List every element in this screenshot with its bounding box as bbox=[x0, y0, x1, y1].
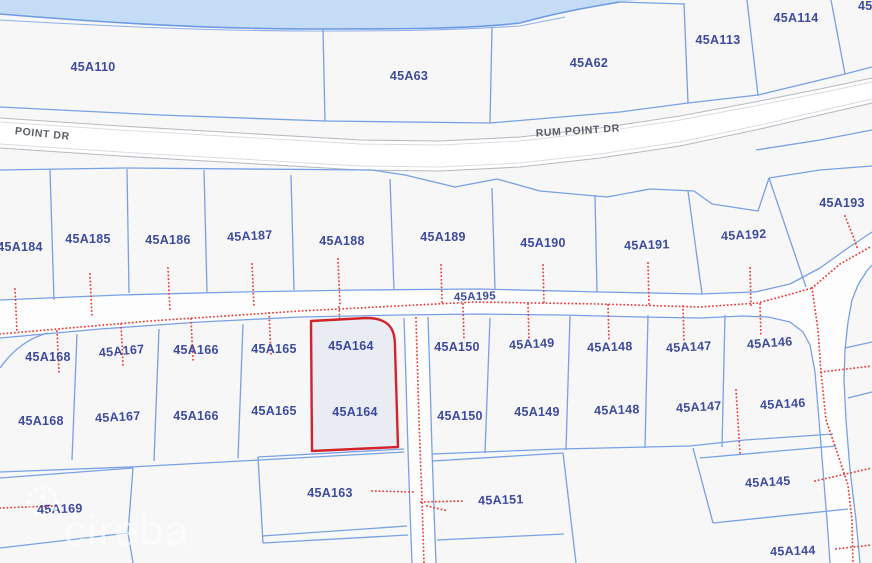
selected-parcel-45A164[interactable] bbox=[311, 318, 398, 451]
parcel-label-45A147-lower: 45A147 bbox=[676, 399, 722, 415]
parcel-label-45A62: 45A62 bbox=[570, 56, 608, 70]
parcel-label-45A163: 45A163 bbox=[307, 486, 353, 500]
parcel-label-45A189: 45A189 bbox=[420, 230, 466, 244]
parcel-label-45A148-lower: 45A148 bbox=[594, 402, 640, 418]
parcel-label-45A165-lower: 45A165 bbox=[251, 404, 297, 418]
parcel-label-45A166-lower: 45A166 bbox=[173, 409, 219, 423]
parcel-label-45A190: 45A190 bbox=[520, 236, 566, 250]
parcel-label-45A168-lower: 45A168 bbox=[18, 414, 64, 428]
parcel-label-45A63: 45A63 bbox=[390, 69, 428, 83]
parcel-label-45A145: 45A145 bbox=[745, 474, 791, 490]
parcel-label-45A165-upper: 45A165 bbox=[251, 342, 297, 356]
parcel-label-45A185: 45A185 bbox=[65, 232, 111, 246]
parcel-label-45A167-lower: 45A167 bbox=[95, 409, 141, 425]
road-label-45A195: 45A195 bbox=[454, 290, 497, 303]
parcel-label-45A150-lower: 45A150 bbox=[437, 409, 483, 423]
parcel-label-45A191: 45A191 bbox=[624, 237, 670, 253]
parcel-label-45A114: 45A114 bbox=[774, 11, 819, 25]
parcel-label-45A147-upper: 45A147 bbox=[666, 339, 712, 355]
parcel-label-45A146-lower: 45A146 bbox=[760, 396, 806, 412]
parcel-label-45A184: 45A184 bbox=[0, 240, 43, 254]
parcel-label-corner-partial: 45 bbox=[858, 0, 872, 13]
parcel-label-45A164-upper: 45A164 bbox=[328, 339, 374, 353]
parcel-label-45A187: 45A187 bbox=[227, 228, 273, 244]
parcel-label-45A164-lower: 45A164 bbox=[332, 405, 378, 419]
parcel-label-45A192: 45A192 bbox=[721, 227, 767, 243]
cireba-watermark-text: cireba bbox=[64, 507, 190, 554]
parcel-label-45A186: 45A186 bbox=[145, 233, 191, 247]
parcel-label-45A110: 45A110 bbox=[71, 60, 116, 74]
land-background bbox=[0, 0, 872, 563]
parcel-label-45A188: 45A188 bbox=[319, 234, 365, 248]
parcel-label-45A113: 45A113 bbox=[696, 33, 741, 47]
parcel-label-45A193: 45A193 bbox=[819, 196, 865, 210]
parcel-label-45A149-upper: 45A149 bbox=[509, 336, 555, 352]
parcel-label-45A151: 45A151 bbox=[478, 492, 524, 508]
parcel-label-45A148-upper: 45A148 bbox=[587, 339, 633, 355]
parcel-label-45A144: 45A144 bbox=[770, 543, 816, 559]
parcel-label-45A150-upper: 45A150 bbox=[434, 340, 480, 354]
map-canvas[interactable]: 45A110 45A63 45A62 45A113 45A114 45 45A1… bbox=[0, 0, 872, 563]
parcel-label-45A149-lower: 45A149 bbox=[514, 405, 560, 419]
parcel-label-45A168-upper: 45A168 bbox=[25, 350, 71, 364]
parcel-label-45A166-upper: 45A166 bbox=[173, 343, 219, 357]
